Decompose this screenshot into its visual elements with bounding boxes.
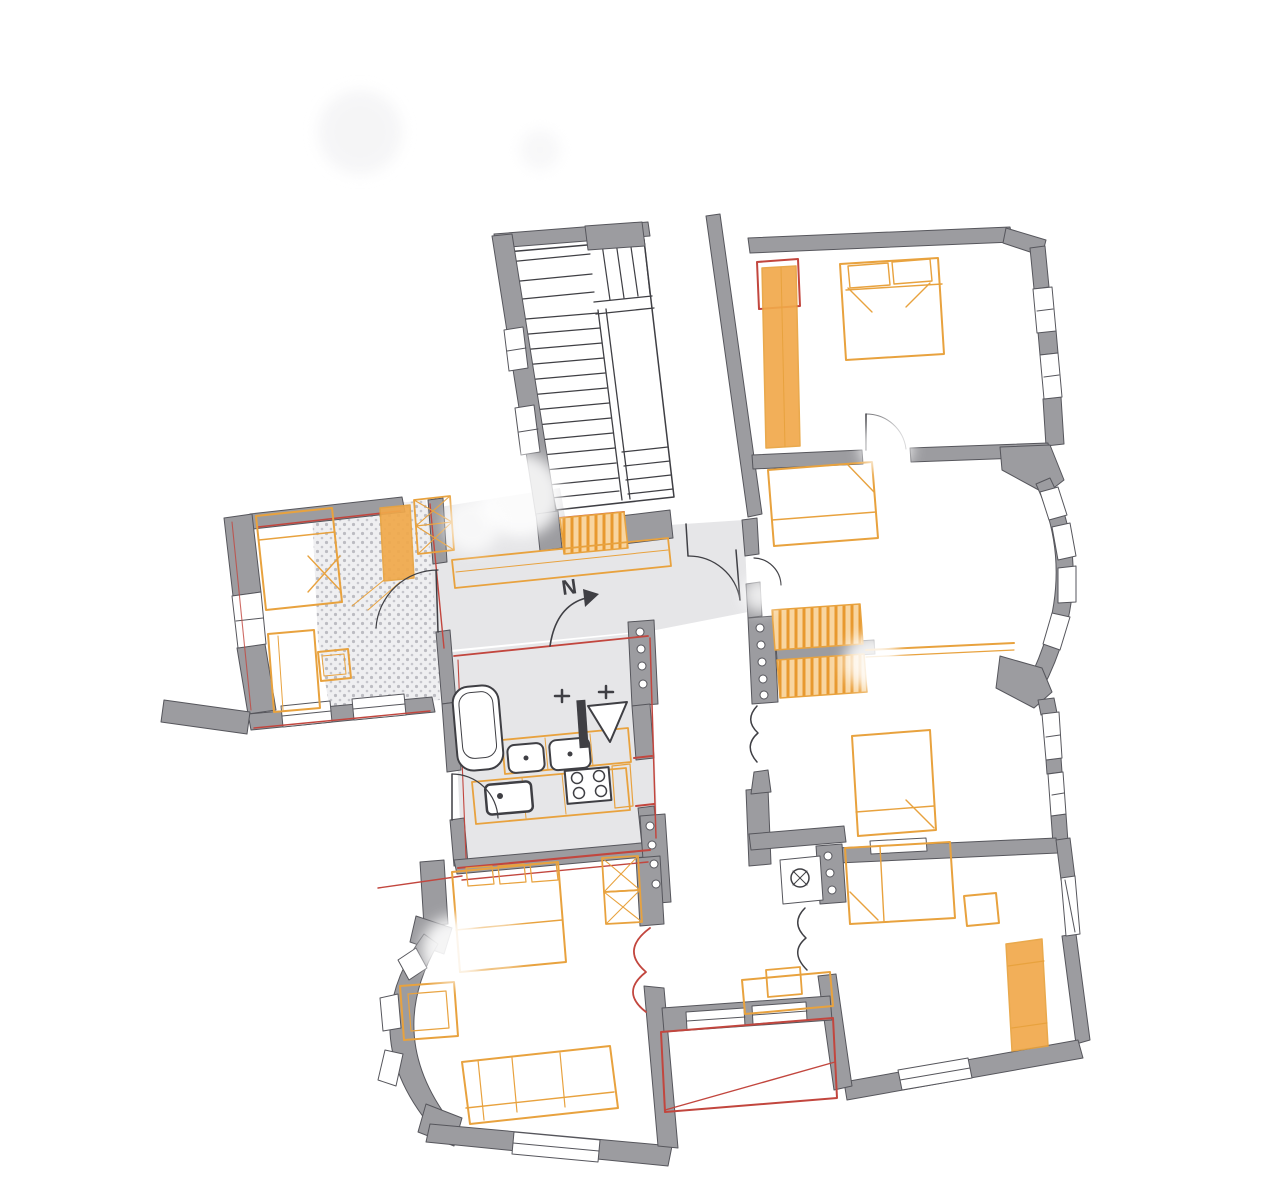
stair-top-right-block (585, 222, 645, 250)
wall-dot (759, 675, 767, 683)
desk-line (278, 636, 283, 710)
stair-tread (536, 418, 611, 425)
wall-dot (758, 658, 766, 666)
bed-pillow (848, 263, 890, 288)
stair-landing-line-2 (596, 308, 654, 314)
stair-tread (517, 328, 600, 335)
west-wall-stub (161, 700, 250, 734)
bed (840, 258, 944, 360)
spine-wall-a (742, 518, 759, 556)
stair-winder (630, 240, 638, 296)
wall-dot (637, 645, 645, 653)
ghost-mark (520, 130, 560, 170)
bed (768, 462, 878, 546)
sink-faucet (497, 793, 503, 799)
bed-line (772, 512, 876, 520)
eraser-smudge (476, 921, 524, 969)
desk-box (766, 967, 802, 997)
wall-dot (638, 662, 646, 670)
stair-tread (533, 403, 609, 410)
living-left-wall-top (420, 860, 448, 926)
wall-dot (756, 624, 764, 632)
bedroom3-right-wall-b (1046, 758, 1062, 774)
sofa-divider (512, 1058, 517, 1112)
side-table (964, 893, 999, 926)
ghost-mark (318, 90, 402, 174)
party-wall-diagonal (706, 214, 762, 517)
wall-dot (826, 869, 834, 877)
stair-tread (523, 358, 604, 365)
bed (852, 730, 936, 836)
stair-tread (520, 343, 602, 350)
basin-drain (568, 752, 573, 757)
wall-dot (650, 860, 658, 868)
wall-dot (828, 886, 836, 894)
sofa-divider (560, 1053, 565, 1107)
x-wardrobe-diag (604, 856, 638, 892)
door-squiggle (750, 706, 758, 762)
bay-window-pane (1040, 487, 1067, 520)
hall-corner-wall-vert (746, 788, 771, 866)
stair-tread (514, 313, 598, 320)
wall-dot (824, 852, 832, 860)
bed-line (856, 806, 934, 812)
sofa-back-line (466, 1092, 614, 1108)
bed-fold (850, 892, 878, 920)
stair-tread (539, 433, 613, 440)
wardrobe-filled (1006, 939, 1048, 1051)
stair-lower-tread (626, 475, 671, 480)
bed-pillow (892, 259, 932, 284)
wall-dot (760, 691, 768, 699)
bedroom1-right-wall-c (1043, 397, 1064, 446)
floor-plan-page: N (0, 0, 1280, 1197)
wardrobe-filled (762, 266, 800, 448)
eraser-smudge (860, 421, 912, 473)
bedroom1-right-wall-a (1030, 246, 1049, 289)
wardrobe-filled (380, 505, 414, 581)
wall-dot (652, 880, 660, 888)
stair-top-tread (510, 274, 592, 282)
bed-fold (848, 288, 872, 312)
door-squiggle (798, 908, 807, 970)
wall-dot (636, 628, 644, 636)
bay-window-pane (1058, 566, 1076, 603)
bedroom-dotted-floor (312, 500, 440, 710)
spine-wall-c (751, 770, 771, 794)
bedroom4-right-wall-b (1062, 934, 1090, 1044)
bedroom4-right-wall-a (1056, 838, 1075, 880)
desk (268, 630, 320, 712)
floor-plan-drawing: N (0, 0, 1280, 1197)
bathtub (451, 684, 504, 772)
stair-tread (545, 463, 616, 470)
wall-dot (639, 680, 647, 688)
balcony-diagonal-red (665, 1062, 835, 1110)
balcony-outline-red (661, 1018, 837, 1112)
stair-winder (616, 242, 624, 298)
stair-tread (526, 373, 605, 380)
red-ext-left (378, 876, 462, 888)
eraser-smudge (844, 634, 900, 690)
wall-dot (757, 641, 765, 649)
stair-landing-line (594, 296, 652, 302)
stove (565, 767, 612, 804)
kitchen-right-wall-mid (632, 704, 654, 760)
bedroom1-right-wall-b (1038, 330, 1058, 355)
bed-fold (906, 800, 934, 828)
sofa-armrest (478, 1060, 484, 1120)
bow-window-pane (380, 994, 401, 1031)
north-wing-top-wall (748, 227, 1013, 253)
x-wardrobe-diag (606, 890, 640, 924)
stair-tread (542, 448, 615, 455)
stair-lower-tread (624, 461, 670, 466)
wardrobe-striped (772, 604, 863, 650)
eraser-smudge (444, 497, 500, 553)
eraser-smudge (742, 577, 778, 613)
north-label: N (560, 575, 578, 600)
stair-top-tread (512, 292, 594, 300)
basin-drain (524, 756, 529, 761)
wall-dot (646, 822, 654, 830)
stair-top-tread (508, 254, 590, 262)
bed-fold (848, 465, 874, 492)
bow-window-pane (378, 1050, 403, 1086)
stair-lower-landing-line (622, 447, 668, 452)
bay-window-pane (1043, 613, 1070, 650)
sofa (462, 1046, 618, 1124)
stair-lower-tread (628, 489, 673, 494)
stair-winder (602, 244, 610, 300)
wall-dot (648, 841, 656, 849)
stair-tread (529, 388, 607, 395)
stair-winder (644, 239, 650, 294)
